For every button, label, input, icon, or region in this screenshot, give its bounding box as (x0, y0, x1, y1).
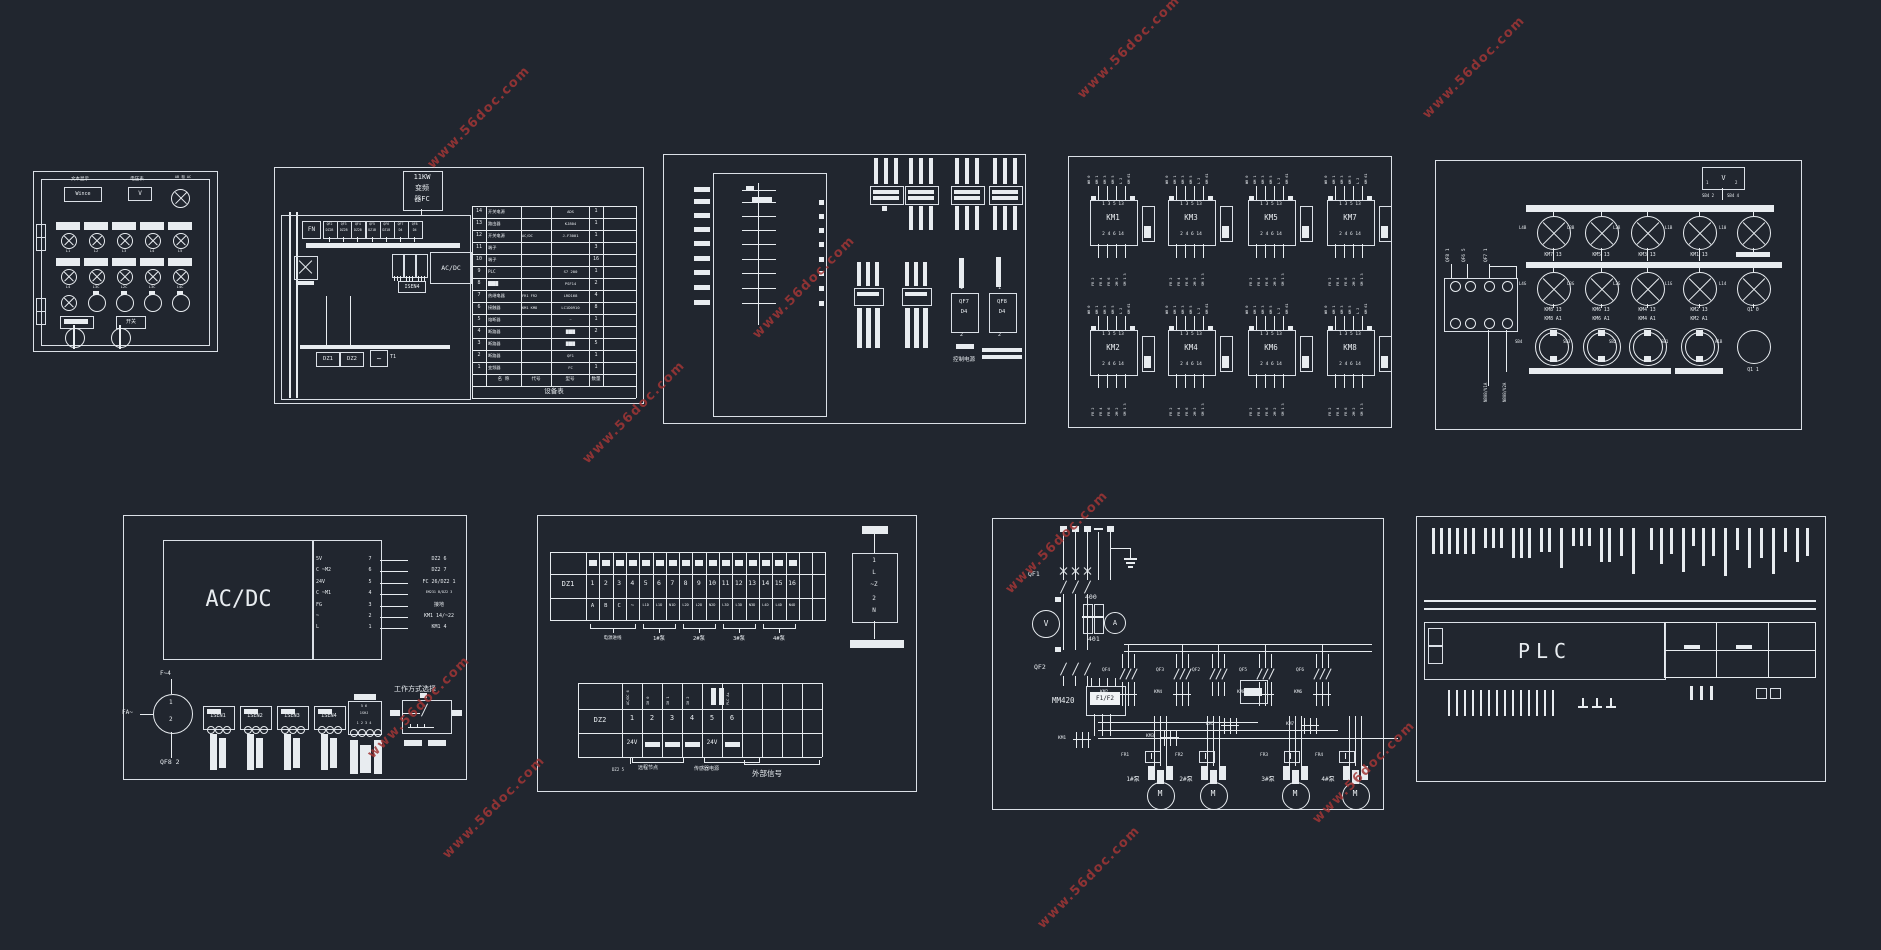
lamp-tag: L3C (85, 285, 107, 289)
pin-tag: W0 0 (1325, 176, 1329, 184)
cell-code: FR1 FR2 (522, 294, 550, 298)
terminal (297, 726, 305, 734)
cell-qty: 4 (589, 293, 603, 299)
terminal-tag: I0 1 (667, 697, 671, 705)
pin (1115, 678, 1116, 686)
pin (1203, 374, 1204, 388)
pin-num: 5 (364, 580, 376, 586)
pin (418, 276, 419, 281)
hatch (219, 738, 226, 768)
pin-tag: KM 1 (1254, 306, 1258, 314)
qf8-2-label: QF8 2 (160, 759, 180, 766)
terminal (358, 729, 366, 737)
aux-fill (1144, 226, 1151, 238)
wire (1224, 654, 1225, 668)
button-sq (1644, 330, 1651, 336)
wire-label-bar (694, 187, 710, 192)
motor-label: M (1282, 789, 1308, 798)
table-line (578, 683, 579, 757)
qf2-label: QF2 (1034, 664, 1046, 671)
qf8-pin-bottom: 2 (998, 333, 1001, 339)
terminal-tick (1560, 528, 1563, 568)
brace (704, 762, 760, 763)
breaker-id: QF2 (323, 223, 336, 227)
qf7-id: QF7 (951, 299, 977, 305)
header-name: 名 称 (486, 377, 521, 382)
wire (1310, 718, 1311, 734)
cell-qty: 1 (589, 269, 603, 275)
indicator-lamp (1683, 216, 1717, 250)
table-line (472, 374, 636, 375)
pin (1335, 374, 1336, 388)
terminal (207, 726, 215, 734)
wire (1506, 330, 1507, 372)
wire (380, 560, 408, 561)
connector-pin (1450, 318, 1461, 329)
wire (1110, 532, 1111, 580)
wire (1087, 676, 1088, 686)
lamp-tag: L10 (1719, 226, 1726, 231)
button-tag: A1B (1715, 340, 1722, 345)
pin-tag: FR 6 (1266, 408, 1270, 416)
relay-pins-top: 1 3 5 13 (1090, 332, 1136, 337)
phase-bar (919, 158, 923, 184)
pin (1099, 678, 1100, 686)
terminal-sq (1055, 597, 1061, 602)
wire-mark (762, 560, 770, 566)
text-display-title: 文本显示 (58, 177, 102, 182)
pin (1176, 244, 1177, 258)
table-line (472, 266, 636, 267)
pin (1265, 316, 1266, 330)
vfd-line1: 11KW (403, 173, 441, 181)
pin (1203, 316, 1204, 330)
breaker-sym (854, 288, 884, 306)
table-line (472, 362, 636, 363)
hatch (293, 738, 300, 768)
pin-tag: 2M 2 (1194, 278, 1198, 286)
qf-tag-2: QF6 5 (1463, 248, 1468, 262)
brace (675, 624, 676, 629)
wire (1553, 248, 1554, 261)
thermal-box (1145, 751, 1161, 763)
wire-mark (656, 560, 664, 566)
acdc-main-box: AC/DC (163, 540, 314, 660)
lamp-tag: L4 (141, 249, 163, 253)
pin (1283, 244, 1284, 258)
terminal-num: 15 (772, 580, 785, 587)
wire (1176, 654, 1177, 668)
wire (1213, 716, 1214, 766)
voltmeter-8: V (1032, 610, 1060, 638)
terminal-tick (1572, 528, 1575, 546)
terminal-label: C (613, 603, 626, 609)
terminal-label: L4D (759, 603, 772, 607)
pin-tag: KM 61 (1206, 173, 1210, 184)
phase-bar (1013, 158, 1017, 184)
table-line (486, 206, 487, 386)
phase-bar (866, 262, 870, 286)
x-mark (1070, 566, 1080, 576)
pin (1125, 244, 1126, 258)
table-line (812, 552, 813, 620)
fuse-bar (875, 308, 880, 348)
breaker-bar (905, 292, 927, 296)
phase-bar (909, 158, 913, 184)
pin (406, 276, 407, 281)
wire (1606, 706, 1616, 708)
mm420-label: MM420 (1052, 697, 1075, 706)
pin-tag: KM 1 (1096, 306, 1100, 314)
vmeter-pin1: 1 (1706, 181, 1708, 186)
indicator-lamp (1631, 216, 1665, 250)
breaker-id: QF3 (337, 223, 350, 227)
pin (1176, 374, 1177, 388)
button-tag: SB4 (1515, 340, 1522, 345)
breaker-id: QF4 (351, 223, 364, 227)
pin (1107, 374, 1108, 388)
wire-label: KM2 13 (1675, 308, 1723, 314)
rotary-handle (73, 325, 75, 349)
wire-mark (709, 560, 717, 566)
cell-name: 路由器 (488, 222, 521, 227)
pin-tag: KM 3 (1182, 176, 1186, 184)
brace (819, 760, 820, 765)
cell-qty: 1 (589, 221, 603, 227)
pin (1283, 374, 1284, 388)
wire (1516, 266, 1517, 278)
wire (1753, 304, 1754, 308)
pin-tag: 2M 2 (1274, 408, 1278, 416)
pin (1353, 374, 1354, 388)
pin-tag: FR 6 (1345, 278, 1349, 286)
filter-l1: 1 (852, 558, 896, 565)
terminal-label: ~ (626, 603, 639, 609)
cell-name: 接触器 (488, 306, 521, 311)
phase-lamp-title: AB 相 AC (163, 175, 203, 179)
ct-401: 401 (1088, 636, 1100, 643)
terminal-tick (1660, 528, 1663, 564)
group-label: 2#泵 (679, 636, 719, 642)
wire (1355, 716, 1356, 766)
pin-tag: KM 3 (1104, 176, 1108, 184)
table-line (578, 709, 822, 710)
pin (397, 276, 398, 281)
cell-code: AC/DC (522, 234, 550, 238)
terminal-dot (819, 214, 824, 219)
pin (1353, 186, 1354, 200)
cell-no: 14 (472, 209, 486, 215)
table-line (742, 683, 743, 757)
wire-mark (629, 560, 637, 566)
pin-tag: KM 61 (1128, 303, 1132, 314)
wire (1361, 716, 1362, 766)
terminal-tick (1806, 528, 1809, 556)
brace (723, 624, 724, 629)
table-line (1664, 622, 1816, 623)
terminal-num: 9 (692, 580, 705, 587)
lamp-tag: L1B (1665, 226, 1672, 231)
terminal-tag: PLC A+ (727, 692, 731, 705)
terminal-num: 13 (746, 580, 759, 587)
phase-bar (993, 206, 997, 230)
phase-bar (1013, 206, 1017, 230)
wire (1110, 714, 1111, 736)
wire (742, 230, 776, 231)
wire (742, 273, 776, 274)
wire (1224, 718, 1225, 734)
table-line (472, 350, 636, 351)
pin (1176, 186, 1177, 200)
wire (1218, 644, 1219, 654)
cell-no: 5 (472, 317, 486, 323)
wire (380, 617, 408, 618)
button-sq (1696, 356, 1703, 362)
label-bar (752, 197, 772, 203)
qf8-id: QF8 (989, 299, 1015, 305)
wire-mark (722, 560, 730, 566)
wire-bar (1620, 262, 1676, 268)
wire (1188, 654, 1189, 668)
relay-pins-bottom: 2 4 6 14 (1090, 362, 1136, 367)
brace (699, 629, 700, 633)
terminal-label: A (586, 603, 599, 609)
cell-qty: 5 (589, 341, 603, 347)
terminal-tick (1472, 528, 1475, 554)
brace (759, 758, 760, 763)
pin-tag: 2M 2 (1116, 278, 1120, 286)
terminal-dot (819, 228, 824, 233)
wire-bar (1672, 262, 1728, 268)
pin-tag: KM 3 (1341, 176, 1345, 184)
note-external-signal: 外部信号 (752, 770, 782, 779)
wire (140, 714, 153, 715)
pin-label: FG (316, 603, 322, 609)
control-power-label: 控制电源 (944, 357, 984, 363)
wire (742, 303, 776, 304)
wire (1110, 548, 1130, 549)
terminal-tick (1528, 690, 1530, 716)
table-line (472, 278, 636, 279)
wire-label: DZ2 7 (410, 568, 468, 574)
contactor-label: KM2 (1100, 690, 1120, 695)
ammeter-8: A (1104, 612, 1126, 634)
relay-pins-top: 1 3 5 13 (1248, 202, 1294, 207)
sensor-top: 5 6 (352, 704, 376, 708)
breaker-bar (992, 196, 1018, 200)
breaker-bar (954, 196, 980, 200)
motor-label: M (1147, 789, 1173, 798)
hatch (330, 738, 337, 768)
terminal-dot (819, 200, 824, 205)
wire-bar (1736, 252, 1770, 257)
cell-qty: 8 (589, 305, 603, 311)
cell-qty: 16 (589, 257, 603, 263)
wire-label: KM8 A1 (1529, 317, 1577, 323)
lamp-tag: L4 (57, 285, 79, 289)
table-line (472, 242, 636, 243)
terminal (334, 726, 342, 734)
wire (1265, 654, 1266, 668)
terminal-tick (1712, 528, 1715, 556)
terminal-num: 3 (662, 714, 682, 722)
terminal-num: 10 (706, 580, 719, 587)
connector-pin (1450, 281, 1461, 292)
pin (1344, 186, 1345, 200)
pin-tag: 2M 2 (1116, 408, 1120, 416)
note-dz2-5: DZ2 5 (612, 768, 624, 773)
terminal-label: N4D (786, 603, 799, 607)
wire-label: KM4 13 (1623, 308, 1671, 314)
cell-name: 变频器 (488, 366, 521, 371)
cell-model: ████ (552, 342, 589, 346)
indicator-lamp (117, 269, 133, 285)
pin-tag: 2M 2 (1194, 408, 1198, 416)
lamp-tag: L1G (1665, 282, 1672, 287)
pin-tag: W0 0 (1246, 306, 1250, 314)
terminal-tick (1432, 528, 1435, 554)
terminal-num: 16 (786, 580, 799, 587)
table-line (1664, 650, 1816, 651)
button-tag: SB1 (1661, 340, 1668, 345)
cell-model: LC1D0910 (552, 306, 589, 310)
phase-bar (857, 262, 861, 286)
filter-l4: 2 (852, 596, 896, 603)
watermark: www.56doc.com (425, 63, 534, 172)
pin (412, 276, 413, 281)
table-line (550, 574, 826, 575)
cell-name: ████ (488, 282, 521, 287)
relay-pins-top: 1 3 5 13 (1327, 332, 1373, 337)
wire-label-bar (694, 241, 710, 246)
thermal-label: FR4 (1315, 753, 1335, 758)
breaker-model: D4 (394, 229, 407, 233)
watermark: www.56doc.com (1035, 823, 1144, 932)
nameplate-bar (168, 222, 192, 230)
table-line (822, 683, 823, 757)
pin (1265, 244, 1266, 258)
terminal (289, 726, 297, 734)
hatch (1157, 770, 1164, 784)
push-button (172, 294, 190, 312)
wire (1122, 654, 1123, 668)
terminal-tick (1448, 528, 1451, 554)
wire (1582, 698, 1584, 706)
hatch (210, 734, 217, 770)
sensor-label: ISEN1 (203, 714, 233, 720)
terminal-label: N1D (666, 603, 679, 607)
wire (1212, 654, 1213, 668)
nameplate-bar (168, 258, 192, 266)
pin (1098, 374, 1099, 388)
qf-tag-1: QF8 1 (1447, 248, 1452, 262)
indicator-lamp (173, 269, 189, 285)
contact-bar (1221, 725, 1239, 726)
pin (1116, 374, 1117, 388)
cell-qty: 1 (589, 317, 603, 323)
wire (1130, 548, 1131, 558)
pin (1335, 244, 1336, 258)
wire (1094, 714, 1095, 736)
pin (1125, 374, 1126, 388)
pin (1274, 374, 1275, 388)
aux-fill (1302, 226, 1309, 238)
connector-pin (1502, 318, 1513, 329)
terminal-tick (1484, 528, 1487, 548)
terminal (350, 729, 358, 737)
lamp-tag: L2C (113, 285, 135, 289)
relay-name: KM8 (1327, 344, 1373, 353)
breaker-bar (908, 190, 934, 194)
indicator-lamp (117, 233, 133, 249)
pin-tag: FR 6 (1345, 408, 1349, 416)
wire-bar (1623, 368, 1671, 374)
wire-bar (956, 344, 974, 349)
meter-num2: 2 (169, 717, 173, 724)
qf8-model: D4 (989, 309, 1015, 315)
pin-tag: KM 3 (1341, 306, 1345, 314)
hatch (1219, 766, 1226, 780)
wire (1451, 264, 1452, 278)
pin (1353, 244, 1354, 258)
wire (1601, 304, 1602, 308)
pin-tag: FR 2 (1170, 408, 1174, 416)
lamp-tag: L4B (1519, 226, 1526, 231)
table-line (578, 757, 822, 758)
cell-model: QF1 (552, 354, 589, 358)
connector-pin (1502, 281, 1513, 292)
pin-tag: KM 1 (1096, 176, 1100, 184)
wire-mark (645, 742, 660, 747)
phase-bar (1003, 158, 1007, 184)
table-line (802, 683, 803, 757)
cell-qty: 1 (589, 233, 603, 239)
phase-bar (884, 158, 888, 184)
nameplate-bar (56, 258, 80, 266)
lamp-tag: L2 (85, 249, 107, 253)
pin-tag: FR 2 (1092, 278, 1096, 286)
table-line (472, 398, 636, 399)
button-sq (1644, 356, 1651, 362)
terminal-tag: AC/DC 6 (627, 690, 631, 705)
cell-model: ADS (552, 210, 589, 214)
wire (630, 757, 631, 764)
pin-tag: SM 1 3 (1361, 403, 1365, 416)
phase-bar (1003, 206, 1007, 230)
connector-pin (1484, 318, 1495, 329)
button-cap (149, 291, 155, 295)
contactor-label: KM4 (1154, 690, 1174, 695)
wire-bar (862, 526, 888, 534)
vmeter-wire2: SB4 4 (1727, 194, 1739, 199)
bus-line (1424, 608, 1816, 610)
indicator (1737, 330, 1771, 364)
wire-label-bar (694, 199, 710, 204)
brace (659, 629, 660, 633)
ground-bar (1128, 566, 1133, 568)
wire-bar (982, 355, 1022, 359)
push-button (144, 294, 162, 312)
hatch (350, 740, 358, 774)
pin (1362, 186, 1363, 200)
cell-name: 断路器 (488, 354, 521, 359)
wire-bar (1672, 205, 1728, 212)
pin-tag: FR 4 (1100, 408, 1104, 416)
hatch (1283, 766, 1290, 780)
pin-tag: KM 3 (1262, 176, 1266, 184)
relay-pins-top: 1 3 5 13 (1168, 202, 1214, 207)
terminal-label: L1D (639, 603, 652, 607)
